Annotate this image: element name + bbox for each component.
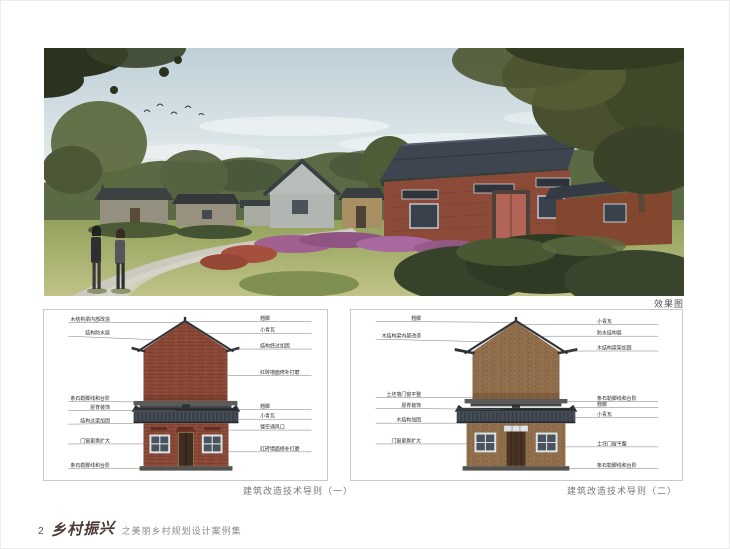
annotation-text: 翘脚 — [411, 315, 421, 322]
annotation-text: 木结构梁内部改造 — [70, 316, 110, 323]
annotation: 木结构加固 — [376, 417, 465, 424]
annotation: 结构经过加固 — [232, 343, 311, 350]
annotation-text: 门窗更换扩大 — [391, 437, 421, 444]
annotation-text: 屋脊装饰 — [90, 404, 110, 411]
panel-guideline-1: 木结构梁内部改造 结构防水层 条石勒脚线和台阶 翘脚 小青瓦 — [43, 309, 328, 481]
annotation: 土坯门窗平整 — [559, 440, 658, 447]
annotation-text: 土坯墙门窗平整 — [387, 391, 422, 398]
annotation-text: 红砖墙面修补打磨 — [260, 445, 300, 452]
annotation: 小青瓦 — [236, 413, 311, 420]
footer: 2 乡村振兴 之美丽乡村规划设计案例集 — [38, 518, 242, 539]
annotation-text: 小青瓦 — [260, 327, 275, 334]
panel-2-caption: 建筑改造技术导则（二） — [350, 484, 677, 497]
annotation-text: 镂空通风口 — [260, 424, 285, 431]
annotation-text: 条石勒脚线和台阶 — [70, 395, 110, 402]
brick-front-elevation — [132, 404, 241, 470]
annotation: 条石勒脚线和台阶 — [68, 395, 133, 402]
panel-guideline-2: 翘脚 木结构梁内部改造 土坯墙门窗平整 小青瓦 防水结构层 — [350, 309, 683, 481]
annotation-text: 小青瓦 — [597, 318, 612, 325]
annotation-text: 翘脚 — [597, 401, 607, 408]
footer-subtitle: 之美丽乡村规划设计案例集 — [122, 524, 242, 537]
annotation: 条石勒脚线和台阶 — [68, 462, 139, 469]
annotation-text: 结构经过加固 — [260, 343, 290, 350]
annotation: 木结构梁内部改造 — [68, 316, 181, 323]
leader-line — [376, 321, 512, 322]
annotation: 翘脚 — [376, 315, 512, 322]
annotation: 翘脚 — [238, 403, 311, 410]
annotation-text: 木结构梁架加固 — [597, 345, 632, 352]
panel-1-caption: 建筑改造技术导则（一） — [43, 484, 353, 497]
annotation-text: 条石勒脚线和台阶 — [70, 462, 110, 469]
annotation: 土坯墙门窗平整 — [376, 391, 473, 398]
annotation-text: 条石勒脚线和台阶 — [597, 395, 637, 402]
earth-gable-elevation — [455, 317, 578, 406]
annotation: 翘脚 — [188, 315, 312, 322]
annotation: 小青瓦 — [573, 411, 658, 418]
annotation: 门窗更换扩大 — [376, 437, 475, 444]
annotation: 小青瓦 — [207, 327, 312, 334]
annotation-text: 翘脚 — [260, 315, 270, 322]
annotation-text: 木结构梁内部改造 — [382, 333, 422, 340]
annotation: 镂空通风口 — [221, 424, 312, 431]
annotation: 结构过梁加固 — [68, 418, 141, 425]
annotation: 条石勒脚线和台阶 — [567, 395, 658, 402]
annotation-text: 木结构加固 — [396, 417, 421, 424]
annotation: 红砖墙面修补打磨 — [228, 369, 312, 376]
annotation-text: 结构防水层 — [85, 330, 110, 337]
document-page: 效果图 — [0, 0, 730, 549]
annotation-text: 土坯门窗平整 — [597, 440, 627, 447]
earth-front-elevation — [455, 404, 578, 470]
tan-house — [338, 188, 386, 228]
annotation-text: 红砖墙面修补打磨 — [260, 369, 300, 376]
render-image — [44, 48, 684, 296]
brand-logo: 乡村振兴 — [50, 517, 115, 540]
annotation-text: 门窗更换扩大 — [80, 437, 110, 444]
annotation: 木结构梁架加固 — [567, 345, 658, 352]
annotation-text: 屋脊装饰 — [401, 402, 421, 409]
annotation: 结构防水层 — [68, 330, 153, 340]
brick-gable-elevation — [132, 317, 240, 408]
annotation-text: 小青瓦 — [597, 411, 612, 418]
annotation: 木结构梁内部改造 — [376, 333, 483, 342]
annotation-text: 防水结构层 — [597, 330, 622, 337]
annotation: 条石勒脚线和台阶 — [569, 462, 658, 469]
leader-line — [376, 339, 483, 341]
annotation: 防水结构层 — [536, 330, 659, 337]
annotation: 门窗更换扩大 — [68, 437, 149, 444]
annotation-text: 翘脚 — [260, 403, 270, 410]
annotation: 小青瓦 — [524, 318, 658, 325]
annotation-text: 条石勒脚线和台阶 — [597, 462, 637, 469]
annotation-text: 小青瓦 — [260, 413, 275, 420]
page-number: 2 — [38, 526, 44, 537]
annotation: 红砖墙面修补打磨 — [228, 445, 311, 452]
leader-line — [68, 336, 153, 339]
